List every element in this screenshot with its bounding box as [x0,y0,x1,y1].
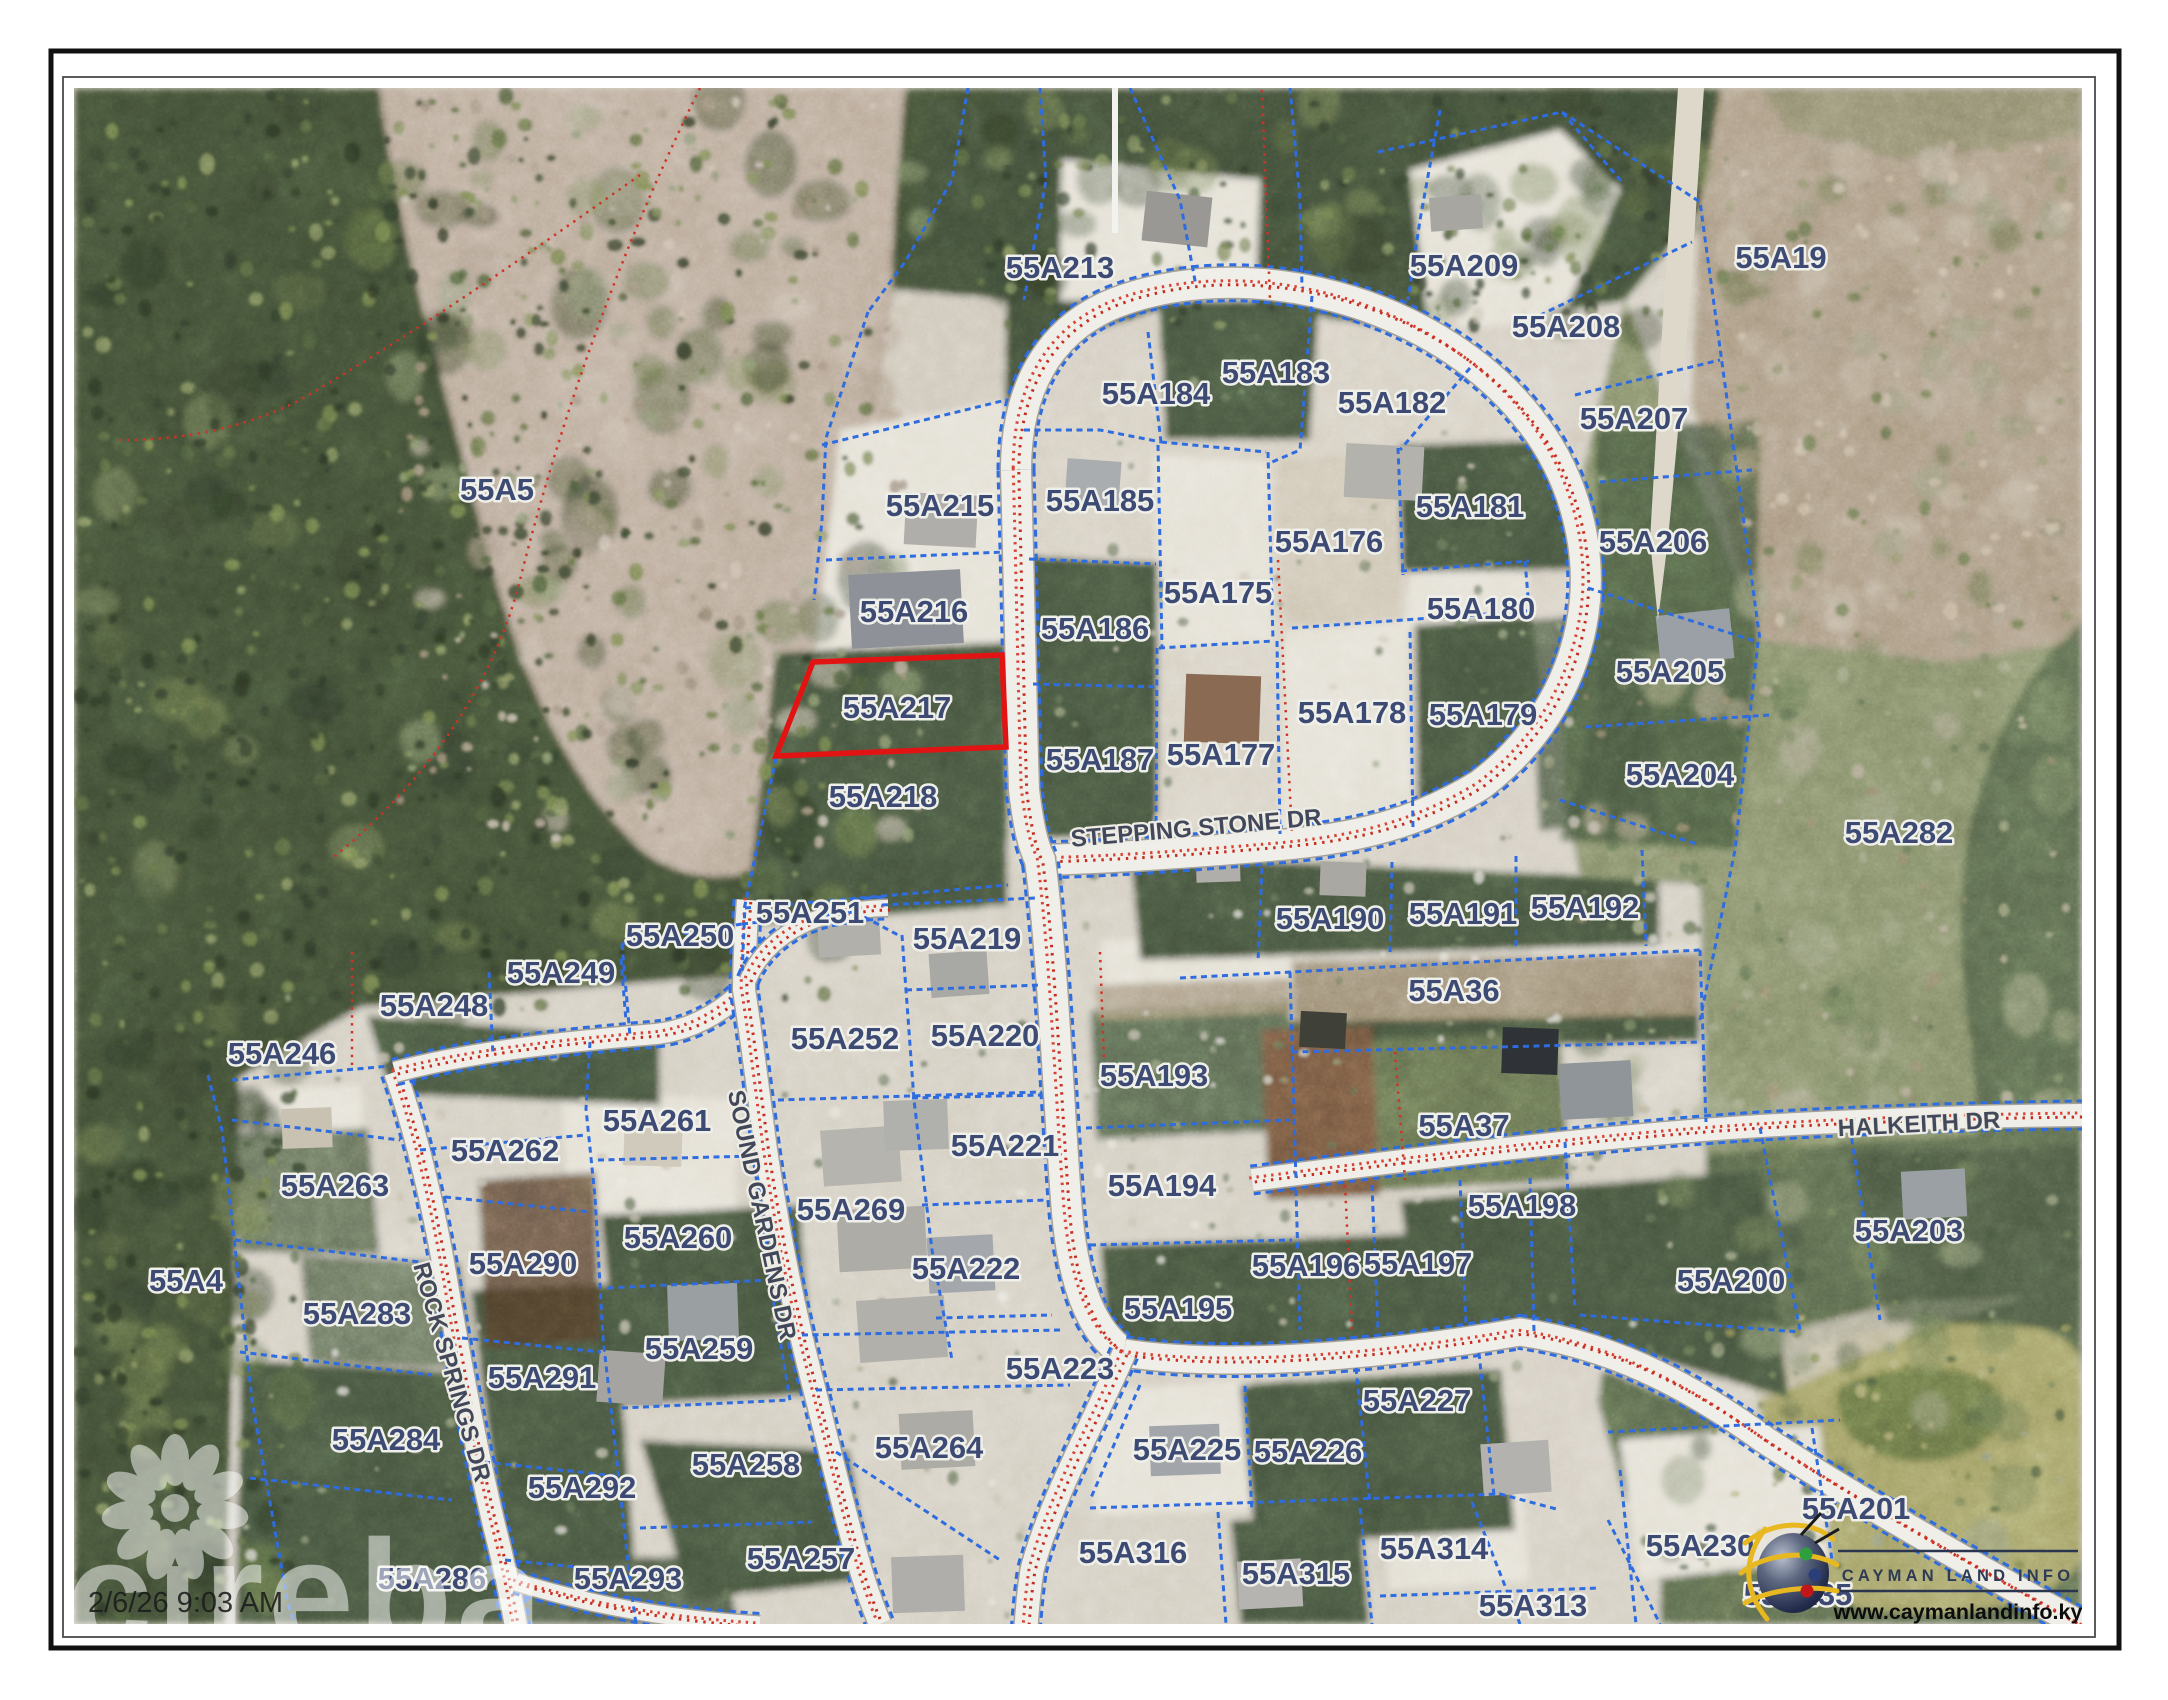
svg-text:55A197: 55A197 [1364,1246,1473,1281]
svg-text:55A177: 55A177 [1167,737,1276,772]
svg-text:55A206: 55A206 [1599,524,1708,559]
svg-text:55A230: 55A230 [1646,1528,1755,1563]
svg-text:55A184: 55A184 [1102,376,1211,411]
svg-text:55A282: 55A282 [1845,815,1954,850]
svg-text:55A284: 55A284 [332,1422,441,1457]
svg-text:55A258: 55A258 [692,1447,801,1482]
svg-text:55A283: 55A283 [303,1296,412,1331]
svg-text:55A208: 55A208 [1512,309,1621,344]
svg-text:55A316: 55A316 [1079,1535,1188,1570]
svg-text:55A290: 55A290 [469,1246,578,1281]
svg-text:55A314: 55A314 [1380,1531,1489,1566]
svg-text:55A263: 55A263 [281,1168,390,1203]
svg-text:55A5: 55A5 [460,472,534,507]
svg-text:55A291: 55A291 [488,1360,597,1395]
svg-text:55A269: 55A269 [797,1192,906,1227]
svg-text:55A246: 55A246 [228,1036,337,1071]
svg-text:55A183: 55A183 [1222,355,1331,390]
svg-text:55A200: 55A200 [1677,1263,1786,1298]
svg-text:55A203: 55A203 [1855,1213,1964,1248]
svg-text:55A257: 55A257 [747,1541,856,1576]
svg-text:55A190: 55A190 [1276,901,1385,936]
svg-text:55A4: 55A4 [149,1263,224,1298]
svg-text:55A225: 55A225 [1133,1432,1242,1467]
svg-text:55A201: 55A201 [1802,1491,1911,1526]
svg-text:55A193: 55A193 [1100,1058,1209,1093]
svg-text:55A19: 55A19 [1735,240,1826,275]
svg-text:55A223: 55A223 [1006,1351,1115,1386]
svg-text:55A216: 55A216 [860,594,969,629]
svg-text:55A182: 55A182 [1338,385,1447,420]
svg-text:55A209: 55A209 [1410,248,1519,283]
svg-text:55A205: 55A205 [1616,654,1725,689]
svg-text:55A292: 55A292 [528,1470,637,1505]
svg-text:55A198: 55A198 [1468,1188,1577,1223]
svg-text:55A215: 55A215 [886,488,995,523]
svg-text:55A222: 55A222 [912,1251,1021,1286]
svg-text:55A175: 55A175 [1164,575,1273,610]
svg-text:55A192: 55A192 [1531,890,1640,925]
svg-text:55A179: 55A179 [1429,697,1538,732]
svg-text:55A313: 55A313 [1479,1588,1588,1623]
svg-text:55A207: 55A207 [1580,401,1689,436]
svg-text:55A186: 55A186 [1041,611,1150,646]
svg-text:55A315: 55A315 [1242,1556,1351,1591]
svg-text:CAYMAN LAND INFO: CAYMAN LAND INFO [1842,1567,2075,1585]
svg-text:55A293: 55A293 [574,1561,683,1596]
svg-text:55A219: 55A219 [913,921,1022,956]
svg-text:55A37: 55A37 [1418,1108,1509,1143]
svg-text:55A181: 55A181 [1416,489,1525,524]
svg-text:55A251: 55A251 [756,895,865,930]
svg-text:55A218: 55A218 [829,779,938,814]
svg-text:55A187: 55A187 [1046,742,1155,777]
svg-text:www.caymanlandinfo.ky: www.caymanlandinfo.ky [1833,1600,2083,1624]
svg-text:55A249: 55A249 [507,955,616,990]
svg-text:55A261: 55A261 [603,1103,712,1138]
svg-text:55A262: 55A262 [451,1133,560,1168]
svg-text:55A180: 55A180 [1427,591,1536,626]
svg-text:55A252: 55A252 [791,1021,900,1056]
svg-text:55A259: 55A259 [645,1331,754,1366]
svg-text:55A226: 55A226 [1254,1434,1363,1469]
svg-text:55A36: 55A36 [1408,973,1499,1008]
svg-text:2/6/26 9:03 AM: 2/6/26 9:03 AM [88,1587,283,1619]
svg-text:55A260: 55A260 [624,1220,733,1255]
svg-text:55A185: 55A185 [1046,483,1155,518]
svg-text:55A176: 55A176 [1275,524,1384,559]
svg-text:55A250: 55A250 [626,918,735,953]
svg-text:55A217: 55A217 [843,690,952,725]
svg-text:55A220: 55A220 [931,1018,1040,1053]
svg-text:55A204: 55A204 [1626,757,1735,792]
svg-text:55A264: 55A264 [875,1430,984,1465]
svg-text:55A196: 55A196 [1252,1248,1361,1283]
svg-text:55A227: 55A227 [1363,1383,1472,1418]
svg-text:55A221: 55A221 [951,1128,1060,1163]
svg-text:55A178: 55A178 [1298,695,1407,730]
svg-text:55A191: 55A191 [1409,896,1518,931]
svg-text:55A195: 55A195 [1124,1291,1233,1326]
svg-text:55A248: 55A248 [380,988,489,1023]
svg-text:55A194: 55A194 [1108,1168,1217,1203]
svg-text:55A213: 55A213 [1006,250,1115,285]
